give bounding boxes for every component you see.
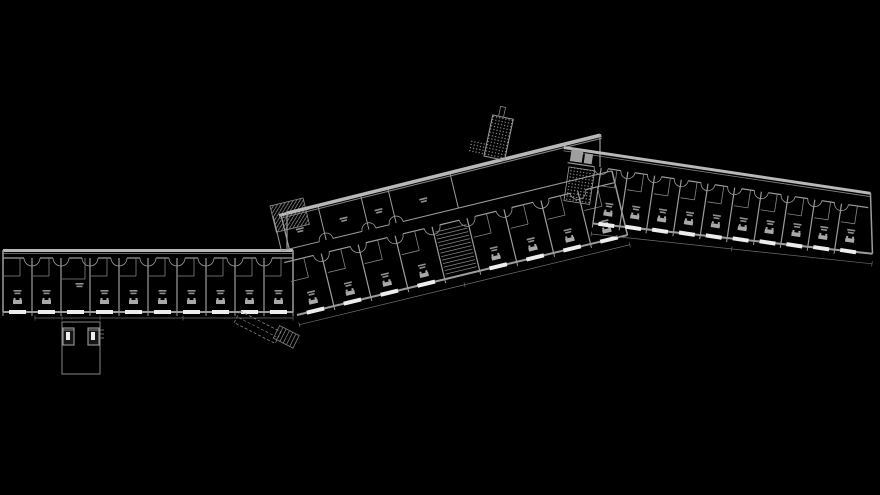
furniture bbox=[712, 221, 714, 223]
interior-wall bbox=[548, 215, 565, 219]
corridor-wall bbox=[403, 229, 424, 234]
furniture bbox=[217, 298, 219, 300]
furniture bbox=[100, 300, 109, 304]
floor-plan-screenshot bbox=[0, 0, 880, 495]
door-arc bbox=[198, 258, 206, 266]
stair-step bbox=[440, 246, 471, 254]
dimension-tick bbox=[731, 246, 732, 251]
furniture bbox=[819, 233, 821, 235]
room-label-mark bbox=[820, 226, 828, 229]
furniture bbox=[275, 298, 277, 300]
room-label-mark bbox=[15, 293, 21, 295]
furniture bbox=[245, 300, 254, 304]
dimension-tick bbox=[872, 261, 873, 266]
furniture bbox=[187, 300, 196, 304]
window bbox=[154, 310, 171, 314]
window bbox=[706, 233, 722, 239]
partition-wall bbox=[673, 180, 681, 233]
entrance-stair bbox=[468, 102, 515, 161]
stair-step bbox=[438, 235, 469, 243]
door-arc bbox=[169, 258, 177, 266]
window bbox=[38, 310, 55, 314]
room-label-mark bbox=[659, 208, 667, 211]
furniture bbox=[101, 298, 103, 300]
corridor-wall bbox=[512, 202, 533, 207]
room-label-mark bbox=[76, 283, 84, 285]
window bbox=[343, 298, 361, 306]
room-label-mark bbox=[605, 203, 613, 206]
door-arc bbox=[119, 258, 127, 266]
corridor-wall bbox=[329, 247, 350, 252]
interior-wall bbox=[668, 178, 671, 196]
stair-hatch bbox=[468, 140, 486, 156]
interior-wall bbox=[721, 186, 724, 204]
floor-plan-canvas bbox=[0, 0, 880, 495]
furniture bbox=[281, 298, 283, 300]
stair-step bbox=[441, 249, 472, 257]
window bbox=[9, 310, 26, 314]
exterior-steps bbox=[273, 326, 299, 348]
door-arc bbox=[264, 258, 272, 266]
room-label-mark bbox=[713, 214, 721, 217]
room-label-mark bbox=[376, 211, 382, 214]
room-label-mark bbox=[14, 290, 22, 292]
interior-wall bbox=[328, 268, 345, 272]
furniture bbox=[188, 298, 190, 300]
furniture bbox=[223, 298, 225, 300]
elevator-car bbox=[91, 332, 95, 340]
left-wing bbox=[3, 250, 293, 321]
stair-step bbox=[443, 256, 474, 264]
room-label-mark bbox=[767, 220, 775, 223]
room-label-mark bbox=[275, 290, 283, 292]
room-label-mark bbox=[102, 293, 108, 295]
corridor-wall bbox=[440, 220, 459, 225]
interior-wall bbox=[734, 206, 748, 208]
room-label-mark bbox=[794, 226, 800, 228]
furniture bbox=[685, 218, 687, 220]
furniture bbox=[159, 298, 161, 300]
core-room bbox=[570, 149, 584, 163]
room-label-mark bbox=[44, 293, 50, 295]
interior-wall bbox=[801, 198, 804, 216]
interior-wall bbox=[378, 240, 383, 259]
window bbox=[625, 225, 641, 231]
window bbox=[96, 310, 113, 314]
window bbox=[489, 262, 507, 270]
door-arc bbox=[206, 258, 214, 266]
door-arc bbox=[227, 258, 235, 266]
window bbox=[759, 239, 775, 245]
corridor-top-wall bbox=[333, 231, 362, 238]
door-arc bbox=[32, 258, 40, 266]
corridor-wall bbox=[715, 185, 728, 187]
room-label-mark bbox=[528, 240, 534, 243]
window bbox=[125, 310, 142, 314]
window bbox=[417, 280, 435, 288]
door-arc bbox=[235, 258, 243, 266]
interior-wall bbox=[341, 249, 346, 268]
furniture bbox=[765, 227, 767, 229]
window bbox=[526, 253, 544, 261]
stair-step bbox=[436, 228, 467, 236]
partition-wall bbox=[647, 176, 655, 230]
outer-wall bbox=[287, 135, 600, 213]
interior-wall bbox=[365, 259, 382, 263]
furniture bbox=[610, 210, 612, 212]
partition-wall bbox=[727, 188, 735, 238]
partition-wall bbox=[318, 206, 326, 240]
room-label-mark bbox=[686, 211, 694, 214]
corridor-wall bbox=[475, 211, 496, 216]
interior-wall bbox=[523, 205, 528, 224]
furniture bbox=[745, 225, 747, 227]
interior-wall bbox=[707, 202, 721, 204]
right-wing bbox=[551, 147, 880, 278]
furniture bbox=[194, 298, 196, 300]
window bbox=[183, 310, 200, 314]
room-label-mark bbox=[43, 290, 51, 292]
interior-wall bbox=[641, 174, 644, 192]
core-room bbox=[584, 153, 593, 164]
corridor-wall bbox=[795, 197, 808, 199]
furniture bbox=[216, 300, 225, 304]
corridor-wall bbox=[688, 181, 701, 183]
corridor-top-wall bbox=[376, 225, 390, 228]
furniture bbox=[42, 300, 51, 304]
window bbox=[786, 242, 802, 248]
partition-wall bbox=[700, 184, 708, 235]
room-label-mark bbox=[660, 211, 666, 213]
interior-wall bbox=[787, 214, 801, 216]
room-label-mark bbox=[419, 266, 425, 269]
window bbox=[306, 306, 324, 314]
room-label-mark bbox=[131, 293, 137, 295]
interior-wall bbox=[775, 194, 778, 212]
door-arc bbox=[177, 258, 185, 266]
room-label-mark bbox=[421, 200, 427, 203]
furniture bbox=[49, 298, 51, 300]
furniture bbox=[771, 228, 773, 230]
interior-wall bbox=[601, 186, 615, 188]
room-label-mark bbox=[189, 293, 195, 295]
furniture bbox=[136, 298, 138, 300]
room-label-mark bbox=[77, 286, 83, 288]
room-label-mark bbox=[276, 293, 282, 295]
furniture bbox=[165, 298, 167, 300]
room-label-mark bbox=[101, 290, 109, 292]
stair-step bbox=[439, 239, 470, 247]
room-label-mark bbox=[308, 293, 314, 296]
room-label-mark bbox=[606, 205, 612, 207]
furniture bbox=[604, 210, 606, 212]
interior-wall bbox=[402, 250, 419, 254]
room-label-mark bbox=[793, 223, 801, 226]
furniture bbox=[246, 298, 248, 300]
room-label-mark bbox=[821, 229, 827, 231]
room-label-mark bbox=[160, 293, 166, 295]
room-label-mark bbox=[382, 275, 388, 278]
interior-wall bbox=[627, 190, 641, 192]
door-arc bbox=[90, 258, 98, 266]
interior-wall bbox=[814, 218, 828, 220]
furniture bbox=[691, 219, 693, 221]
canopy-centerline bbox=[239, 318, 276, 337]
corridor-wall bbox=[635, 173, 648, 175]
furniture bbox=[718, 222, 720, 224]
door-arc bbox=[140, 258, 148, 266]
outer-wall bbox=[564, 147, 871, 193]
window bbox=[67, 310, 84, 314]
stair-step bbox=[440, 242, 471, 250]
stair-step bbox=[444, 260, 475, 268]
door-arc bbox=[148, 258, 156, 266]
interior-wall bbox=[828, 202, 831, 220]
corridor-wall bbox=[768, 193, 781, 195]
corridor-wall bbox=[662, 177, 675, 179]
corridor-wall bbox=[822, 201, 835, 203]
furniture bbox=[825, 234, 827, 236]
furniture bbox=[852, 237, 854, 239]
window bbox=[652, 228, 668, 234]
interior-wall bbox=[304, 258, 309, 277]
furniture bbox=[14, 298, 16, 300]
room-label-mark bbox=[297, 230, 303, 233]
interior-wall bbox=[474, 233, 491, 237]
furniture bbox=[739, 224, 741, 226]
window bbox=[679, 231, 695, 237]
window bbox=[212, 310, 229, 314]
door-arc bbox=[82, 258, 90, 266]
end-wall bbox=[862, 193, 880, 254]
window bbox=[840, 248, 856, 254]
window bbox=[563, 244, 581, 252]
room-label-mark bbox=[740, 217, 748, 220]
stair-step bbox=[445, 263, 476, 271]
furniture bbox=[130, 298, 132, 300]
furniture bbox=[637, 213, 639, 215]
stair-hatch bbox=[484, 115, 513, 160]
outer-wall-inner bbox=[563, 151, 870, 197]
room-label-mark bbox=[687, 214, 693, 216]
room-label-mark bbox=[767, 223, 773, 225]
furniture bbox=[274, 300, 283, 304]
furniture bbox=[846, 236, 848, 238]
room-label-mark bbox=[633, 208, 639, 210]
room-label-mark bbox=[740, 220, 746, 222]
room-label-mark bbox=[491, 249, 497, 252]
window bbox=[241, 310, 258, 314]
room-label-mark bbox=[847, 229, 855, 232]
stair-step bbox=[442, 253, 473, 261]
window bbox=[380, 289, 398, 297]
interior-wall bbox=[415, 231, 420, 250]
elevator-car bbox=[66, 332, 70, 340]
furniture bbox=[664, 216, 666, 218]
room-label-mark bbox=[565, 231, 571, 234]
partition-wall bbox=[754, 192, 761, 241]
interior-wall bbox=[855, 206, 858, 224]
dimension-tick bbox=[591, 232, 592, 237]
corridor-wall bbox=[366, 238, 387, 243]
door-arc bbox=[53, 258, 61, 266]
room-label-mark bbox=[159, 290, 167, 292]
room-label-mark bbox=[345, 284, 351, 287]
door-arc bbox=[111, 258, 119, 266]
window bbox=[813, 245, 829, 251]
room-label-mark bbox=[848, 232, 854, 234]
elevator-tower bbox=[62, 322, 104, 374]
stair-step bbox=[437, 232, 468, 240]
interior-wall bbox=[841, 222, 855, 224]
furniture bbox=[798, 231, 800, 233]
corridor-wall bbox=[742, 189, 755, 191]
furniture bbox=[658, 215, 660, 217]
furniture bbox=[13, 300, 22, 304]
room-label-mark bbox=[188, 290, 196, 292]
furniture bbox=[43, 298, 45, 300]
room-label-mark bbox=[341, 219, 347, 222]
entrance-stub bbox=[499, 106, 506, 117]
corridor-wall bbox=[284, 255, 313, 262]
door-arc bbox=[256, 258, 264, 266]
door-arc bbox=[24, 258, 32, 266]
furniture bbox=[107, 298, 109, 300]
stair-hatch bbox=[564, 167, 595, 204]
furniture bbox=[252, 298, 254, 300]
room-label-mark bbox=[713, 217, 719, 219]
room-label-mark bbox=[218, 293, 224, 295]
furniture bbox=[129, 300, 138, 304]
room-label-mark bbox=[217, 290, 225, 292]
room-label-mark bbox=[130, 290, 138, 292]
room-label-mark bbox=[246, 290, 254, 292]
furniture bbox=[631, 212, 633, 214]
interior-wall bbox=[511, 224, 528, 228]
interior-wall bbox=[761, 210, 775, 212]
room-label-mark bbox=[632, 206, 640, 209]
wall-stub bbox=[592, 223, 593, 227]
partition-wall bbox=[450, 173, 458, 208]
room-label-mark bbox=[247, 293, 253, 295]
interior-wall bbox=[584, 206, 601, 210]
door-arc bbox=[61, 258, 69, 266]
window bbox=[732, 236, 748, 242]
outer-wall-inner bbox=[287, 139, 600, 217]
interior-wall bbox=[748, 190, 751, 208]
corridor-wall bbox=[608, 169, 621, 171]
interior-wall bbox=[654, 194, 668, 196]
interior-wall bbox=[486, 214, 491, 233]
furniture bbox=[20, 298, 22, 300]
furniture bbox=[158, 300, 167, 304]
interior-wall bbox=[694, 182, 697, 200]
furniture bbox=[792, 230, 794, 232]
window bbox=[270, 310, 287, 314]
interior-wall bbox=[681, 198, 695, 200]
corridor-wall bbox=[848, 205, 868, 208]
